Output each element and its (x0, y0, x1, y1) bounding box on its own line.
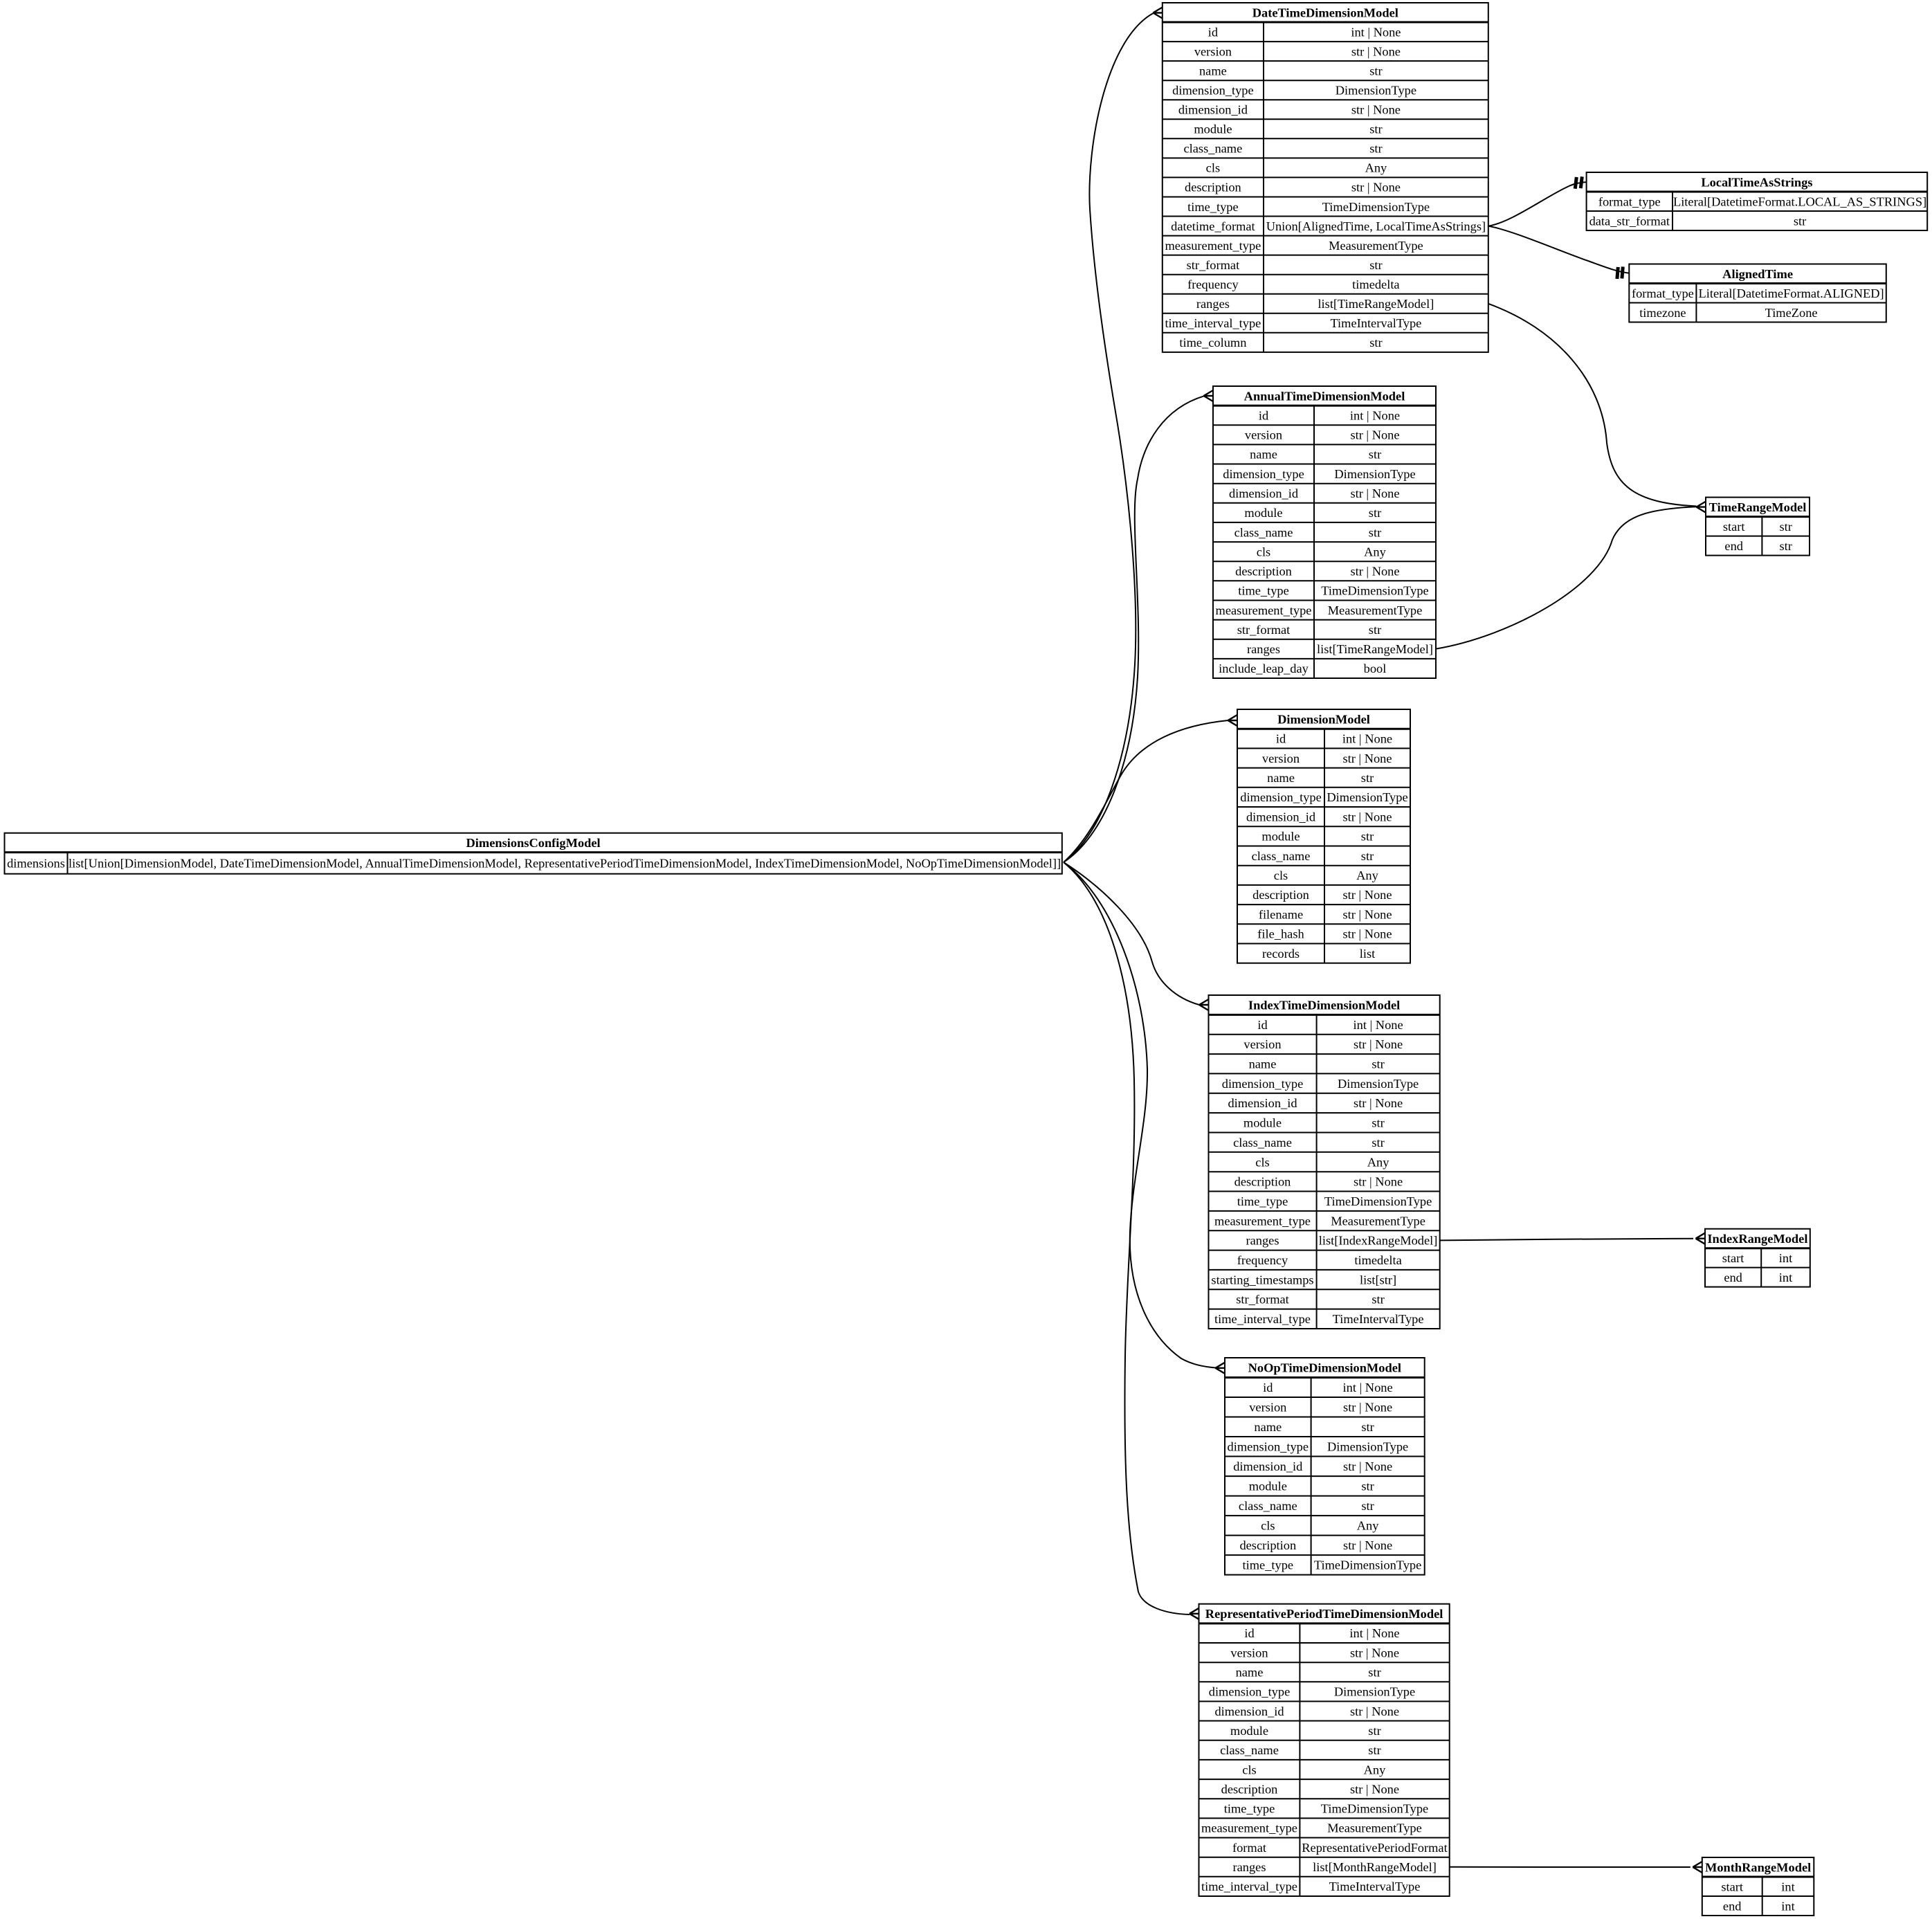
svg-text:dimension_type: dimension_type (1240, 790, 1321, 804)
svg-text:str: str (1369, 506, 1381, 520)
svg-text:list[str]: list[str] (1360, 1273, 1396, 1286)
svg-text:str: str (1369, 258, 1382, 272)
svg-text:str | None: str | None (1350, 428, 1399, 442)
svg-text:module: module (1261, 830, 1300, 844)
svg-text:class_name: class_name (1233, 1136, 1292, 1149)
svg-text:time_type: time_type (1238, 584, 1289, 598)
svg-text:dimension_type: dimension_type (1209, 1685, 1290, 1699)
svg-text:list[Union[DimensionModel, Dat: list[Union[DimensionModel, DateTimeDimen… (69, 856, 1061, 870)
svg-text:AnnualTimeDimensionModel: AnnualTimeDimensionModel (1244, 389, 1405, 403)
svg-text:MeasurementType: MeasurementType (1331, 1214, 1425, 1228)
svg-text:description: description (1185, 181, 1241, 194)
svg-text:measurement_type: measurement_type (1165, 239, 1261, 253)
svg-text:str | None: str | None (1354, 1037, 1403, 1051)
svg-text:TimeIntervalType: TimeIntervalType (1333, 1312, 1424, 1326)
svg-text:str: str (1369, 64, 1382, 78)
svg-text:str_format: str_format (1237, 623, 1291, 637)
svg-text:int: int (1779, 1251, 1792, 1265)
svg-text:str_format: str_format (1187, 258, 1240, 272)
svg-text:cls: cls (1257, 545, 1270, 558)
svg-text:class_name: class_name (1239, 1499, 1297, 1513)
svg-text:int | None: int | None (1342, 732, 1392, 746)
svg-text:list[TimeRangeModel]: list[TimeRangeModel] (1318, 297, 1434, 311)
svg-text:DimensionsConfigModel: DimensionsConfigModel (466, 836, 601, 850)
svg-text:time_column: time_column (1179, 336, 1246, 349)
svg-text:DateTimeDimensionModel: DateTimeDimensionModel (1252, 6, 1398, 19)
svg-text:str: str (1369, 525, 1381, 539)
svg-text:time_interval_type: time_interval_type (1165, 316, 1261, 330)
svg-text:module: module (1249, 1480, 1287, 1493)
svg-text:MeasurementType: MeasurementType (1329, 239, 1423, 253)
svg-text:filename: filename (1259, 907, 1303, 921)
svg-text:module: module (1194, 122, 1232, 136)
svg-text:frequency: frequency (1187, 278, 1239, 291)
svg-text:str | None: str | None (1350, 565, 1399, 579)
svg-text:name: name (1236, 1666, 1264, 1680)
svg-text:str: str (1361, 771, 1374, 785)
svg-text:DimensionType: DimensionType (1334, 1685, 1415, 1699)
svg-text:name: name (1249, 1057, 1277, 1071)
svg-text:TimeDimensionType: TimeDimensionType (1321, 1802, 1428, 1816)
svg-text:version: version (1230, 1646, 1268, 1659)
svg-text:measurement_type: measurement_type (1201, 1821, 1297, 1835)
svg-text:start: start (1722, 1251, 1744, 1265)
svg-text:ranges: ranges (1233, 1860, 1266, 1874)
svg-text:str: str (1371, 1057, 1384, 1071)
svg-text:Any: Any (1365, 161, 1387, 175)
svg-text:Any: Any (1364, 545, 1386, 558)
svg-text:end: end (1724, 1271, 1742, 1284)
svg-text:id: id (1208, 25, 1218, 39)
svg-text:dimension_id: dimension_id (1228, 1096, 1297, 1110)
svg-text:class_name: class_name (1184, 142, 1243, 156)
svg-text:id: id (1276, 732, 1286, 746)
svg-text:RepresentativePeriodFormat: RepresentativePeriodFormat (1302, 1841, 1447, 1855)
svg-text:module: module (1230, 1724, 1268, 1738)
svg-text:str: str (1369, 623, 1381, 637)
svg-text:name: name (1199, 64, 1227, 78)
svg-text:int | None: int | None (1350, 409, 1400, 423)
svg-text:module: module (1244, 506, 1282, 520)
svg-text:description: description (1234, 1175, 1291, 1189)
svg-text:dimension_type: dimension_type (1172, 84, 1253, 98)
svg-text:cls: cls (1274, 868, 1288, 882)
svg-text:str: str (1368, 1743, 1380, 1757)
svg-text:str | None: str | None (1342, 927, 1392, 941)
svg-text:name: name (1254, 1420, 1282, 1434)
svg-text:str: str (1361, 1480, 1374, 1493)
svg-text:str | None: str | None (1350, 486, 1399, 500)
svg-text:TimeIntervalType: TimeIntervalType (1330, 316, 1421, 330)
svg-text:int: int (1781, 1880, 1794, 1893)
svg-text:list[TimeRangeModel]: list[TimeRangeModel] (1317, 642, 1433, 656)
svg-text:frequency: frequency (1237, 1253, 1288, 1267)
svg-text:dimension_type: dimension_type (1228, 1440, 1309, 1454)
svg-text:DimensionModel: DimensionModel (1277, 712, 1370, 726)
svg-text:dimension_id: dimension_id (1233, 1459, 1302, 1473)
svg-text:list[IndexRangeModel]: list[IndexRangeModel] (1319, 1234, 1438, 1248)
svg-text:str_format: str_format (1236, 1293, 1289, 1307)
svg-text:start: start (1723, 520, 1745, 534)
svg-text:str | None: str | None (1351, 44, 1401, 58)
svg-text:str: str (1369, 336, 1382, 349)
svg-text:Any: Any (1357, 1519, 1379, 1533)
svg-text:str | None: str | None (1354, 1096, 1403, 1110)
svg-text:str: str (1371, 1136, 1384, 1149)
svg-text:timedelta: timedelta (1354, 1253, 1401, 1267)
svg-text:str: str (1361, 830, 1374, 844)
svg-text:datetime_format: datetime_format (1171, 219, 1255, 233)
svg-text:ranges: ranges (1196, 297, 1230, 311)
svg-text:str: str (1371, 1116, 1384, 1130)
svg-text:TimeDimensionType: TimeDimensionType (1321, 584, 1428, 598)
svg-text:str: str (1794, 214, 1806, 228)
svg-text:version: version (1194, 44, 1232, 58)
svg-text:TimeRangeModel: TimeRangeModel (1709, 500, 1807, 514)
svg-text:format_type: format_type (1632, 287, 1694, 300)
svg-text:time_interval_type: time_interval_type (1214, 1312, 1311, 1326)
svg-text:id: id (1257, 1018, 1267, 1032)
svg-text:list: list (1360, 947, 1376, 961)
svg-text:str: str (1369, 142, 1382, 156)
svg-text:id: id (1259, 409, 1268, 423)
svg-text:AlignedTime: AlignedTime (1722, 267, 1793, 281)
svg-text:str | None: str | None (1343, 1459, 1392, 1473)
svg-text:dimension_type: dimension_type (1222, 1077, 1303, 1091)
svg-text:list[MonthRangeModel]: list[MonthRangeModel] (1313, 1860, 1437, 1874)
svg-text:str: str (1369, 448, 1381, 462)
svg-text:start: start (1721, 1880, 1743, 1893)
svg-text:class_name: class_name (1252, 849, 1311, 863)
svg-text:str | None: str | None (1351, 181, 1401, 194)
svg-text:DimensionType: DimensionType (1336, 84, 1416, 98)
svg-text:int: int (1781, 1899, 1794, 1913)
svg-text:ranges: ranges (1246, 1234, 1279, 1248)
svg-text:TimeDimensionType: TimeDimensionType (1314, 1558, 1421, 1572)
svg-text:dimension_id: dimension_id (1229, 486, 1298, 500)
svg-text:version: version (1243, 1037, 1281, 1051)
svg-text:DimensionType: DimensionType (1327, 1440, 1408, 1454)
svg-text:time_interval_type: time_interval_type (1201, 1880, 1297, 1893)
svg-text:str | None: str | None (1342, 907, 1392, 921)
svg-text:cls: cls (1206, 161, 1220, 175)
svg-text:name: name (1250, 448, 1277, 462)
svg-text:NoOpTimeDimensionModel: NoOpTimeDimensionModel (1248, 1361, 1401, 1375)
svg-text:id: id (1244, 1626, 1254, 1640)
svg-text:str: str (1371, 1293, 1384, 1307)
svg-text:format: format (1232, 1841, 1266, 1855)
svg-text:dimension_id: dimension_id (1214, 1704, 1284, 1718)
svg-text:time_type: time_type (1224, 1802, 1275, 1816)
svg-text:IndexRangeModel: IndexRangeModel (1707, 1232, 1807, 1246)
svg-text:description: description (1252, 888, 1309, 902)
svg-text:version: version (1262, 752, 1300, 765)
svg-text:DimensionType: DimensionType (1327, 790, 1407, 804)
svg-text:time_type: time_type (1237, 1194, 1288, 1208)
svg-text:id: id (1263, 1381, 1273, 1394)
svg-text:str | None: str | None (1354, 1175, 1403, 1189)
svg-text:class_name: class_name (1220, 1743, 1279, 1757)
svg-text:IndexTimeDimensionModel: IndexTimeDimensionModel (1248, 998, 1400, 1012)
svg-text:Literal[DatetimeFormat.LOCAL_A: Literal[DatetimeFormat.LOCAL_AS_STRINGS] (1673, 194, 1926, 208)
svg-text:str: str (1368, 1666, 1380, 1680)
svg-text:measurement_type: measurement_type (1216, 603, 1312, 617)
svg-text:data_str_format: data_str_format (1589, 214, 1670, 228)
svg-text:str: str (1779, 520, 1792, 534)
svg-text:class_name: class_name (1234, 525, 1293, 539)
svg-text:DimensionType: DimensionType (1334, 467, 1415, 481)
svg-text:str: str (1368, 1724, 1380, 1738)
svg-text:str | None: str | None (1351, 103, 1401, 117)
svg-text:module: module (1243, 1116, 1282, 1130)
svg-text:ranges: ranges (1247, 642, 1280, 656)
svg-text:version: version (1249, 1401, 1286, 1415)
svg-text:str | None: str | None (1342, 888, 1392, 902)
svg-text:int | None: int | None (1349, 1626, 1399, 1640)
svg-text:file_hash: file_hash (1257, 927, 1304, 941)
svg-text:MeasurementType: MeasurementType (1328, 603, 1423, 617)
svg-text:TimeDimensionType: TimeDimensionType (1322, 200, 1430, 214)
svg-text:int | None: int | None (1343, 1381, 1393, 1394)
svg-text:Union[AlignedTime, LocalTimeAs: Union[AlignedTime, LocalTimeAsStrings] (1266, 219, 1486, 233)
svg-text:timedelta: timedelta (1352, 278, 1399, 291)
svg-text:end: end (1724, 539, 1743, 553)
svg-text:str | None: str | None (1342, 810, 1392, 824)
svg-text:str | None: str | None (1350, 1646, 1399, 1659)
svg-text:name: name (1267, 771, 1295, 785)
svg-text:str | None: str | None (1343, 1538, 1392, 1552)
svg-text:str: str (1361, 849, 1374, 863)
svg-text:str | None: str | None (1343, 1401, 1392, 1415)
svg-text:DimensionType: DimensionType (1338, 1077, 1419, 1091)
svg-text:TimeZone: TimeZone (1765, 306, 1818, 320)
svg-text:dimension_id: dimension_id (1178, 103, 1248, 117)
svg-text:int: int (1779, 1271, 1792, 1284)
svg-text:cls: cls (1255, 1155, 1269, 1169)
svg-text:description: description (1235, 565, 1292, 579)
svg-text:measurement_type: measurement_type (1214, 1214, 1311, 1228)
svg-text:Any: Any (1367, 1155, 1389, 1169)
svg-text:end: end (1723, 1899, 1742, 1913)
svg-text:Literal[DatetimeFormat.ALIGNED: Literal[DatetimeFormat.ALIGNED] (1699, 287, 1884, 300)
svg-text:int | None: int | None (1351, 25, 1401, 39)
svg-text:RepresentativePeriodTimeDimens: RepresentativePeriodTimeDimensionModel (1205, 1607, 1443, 1621)
svg-text:Any: Any (1364, 1763, 1386, 1776)
svg-text:str: str (1779, 539, 1792, 553)
svg-text:records: records (1262, 947, 1300, 961)
svg-text:time_type: time_type (1187, 200, 1239, 214)
svg-text:format_type: format_type (1598, 194, 1661, 208)
svg-text:timezone: timezone (1639, 306, 1686, 320)
svg-text:description: description (1221, 1782, 1278, 1796)
svg-text:TimeDimensionType: TimeDimensionType (1324, 1194, 1432, 1208)
svg-text:str | None: str | None (1350, 1704, 1399, 1718)
svg-text:description: description (1239, 1538, 1296, 1552)
svg-text:str | None: str | None (1342, 752, 1392, 765)
svg-text:starting_timestamps: starting_timestamps (1211, 1273, 1313, 1286)
svg-text:str: str (1369, 122, 1382, 136)
svg-text:version: version (1245, 428, 1282, 442)
svg-text:Any: Any (1356, 868, 1378, 882)
svg-text:dimension_type: dimension_type (1223, 467, 1304, 481)
svg-text:str: str (1361, 1499, 1374, 1513)
svg-text:int | None: int | None (1354, 1018, 1403, 1032)
svg-text:time_type: time_type (1243, 1558, 1294, 1572)
svg-text:dimension_id: dimension_id (1246, 810, 1315, 824)
svg-text:cls: cls (1261, 1519, 1275, 1533)
svg-text:MonthRangeModel: MonthRangeModel (1705, 1860, 1811, 1874)
svg-text:MeasurementType: MeasurementType (1327, 1821, 1422, 1835)
svg-text:TimeIntervalType: TimeIntervalType (1329, 1880, 1421, 1893)
svg-text:include_leap_day: include_leap_day (1219, 662, 1309, 675)
svg-text:str | None: str | None (1350, 1782, 1399, 1796)
svg-text:dimensions: dimensions (7, 856, 65, 870)
svg-text:cls: cls (1242, 1763, 1256, 1776)
svg-text:bool: bool (1364, 662, 1387, 675)
svg-text:LocalTimeAsStrings: LocalTimeAsStrings (1701, 175, 1812, 189)
svg-text:str: str (1361, 1420, 1374, 1434)
